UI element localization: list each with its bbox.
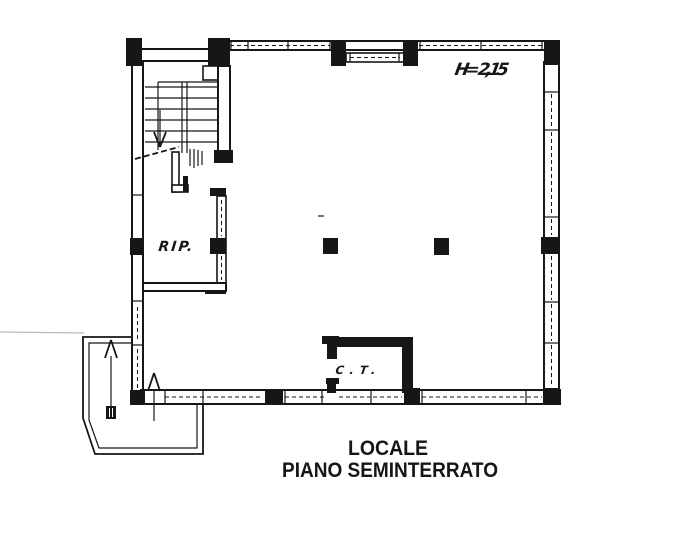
storage-room-label: RIP. [158,239,194,255]
ct-right-wall [402,337,413,393]
rip-wall-pillar [210,238,226,254]
under-stair-wall [172,152,188,192]
scan-crease-line [0,332,84,333]
stair-treads [145,82,218,153]
ct-left-wall [327,336,337,359]
floor-plan-drawing: H= 2,15 RIP. C.T. LOCALE PIANO SEMINTERR… [0,0,683,538]
pillar-interior-2 [434,238,449,255]
pillar-left-mid [130,238,144,255]
stairwell-wall-cap [214,150,233,163]
pillar-bottom-right [543,388,560,404]
exterior-walls [132,41,560,404]
pillar-top-left [126,38,142,66]
pillar-interior-1 [323,238,338,254]
windows [132,41,559,404]
ct-top-wall [330,337,412,347]
rip-wall-top-cap [210,188,226,196]
labels: H= 2,15 RIP. C.T. LOCALE PIANO SEMINTERR… [158,60,511,482]
pillar-top-3 [331,41,346,66]
pillar-bottom-mid [265,389,283,404]
caption-line2: PIANO SEMINTERRATO [282,459,498,482]
stairwell-right-wall [218,66,230,152]
top-wall-stair-section [141,49,211,61]
pillars [126,38,560,405]
rip-bottom-wall [143,283,226,291]
floor-plan-page: H= 2,15 RIP. C.T. LOCALE PIANO SEMINTERR… [0,0,683,538]
pillar-right-mid [541,237,560,254]
ct-door-jamb [327,378,336,393]
boiler-room-label: C.T. [335,363,379,377]
stair-hatch [190,149,202,168]
pillar-top-right [544,40,560,65]
caption-line1: LOCALE [348,437,428,460]
pillar-top-4 [403,41,418,66]
pillar-top-2 [208,38,230,66]
stairwell-wall-notch [203,66,218,80]
ceiling-height-label: H= 2,15 [453,60,511,80]
ramp-up-arrow-icon [105,340,117,419]
staircase [135,66,233,192]
pillar-bottom-left [130,390,145,405]
